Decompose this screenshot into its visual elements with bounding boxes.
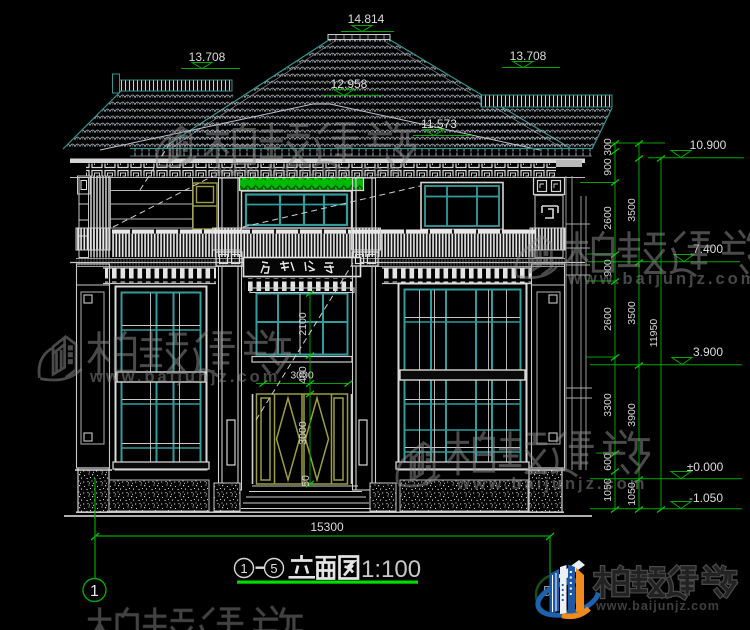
svg-text:1: 1 bbox=[240, 561, 247, 576]
svg-text:3.900: 3.900 bbox=[693, 345, 723, 359]
svg-text:www.baijunjz.com: www.baijunjz.com bbox=[567, 270, 750, 288]
svg-text:1:100: 1:100 bbox=[361, 556, 421, 583]
svg-text:3000: 3000 bbox=[297, 421, 309, 445]
svg-text:1: 1 bbox=[90, 583, 99, 600]
svg-text:www.baijunjz.com: www.baijunjz.com bbox=[212, 162, 403, 180]
svg-text:10.900: 10.900 bbox=[690, 138, 727, 152]
svg-text:www.baijunjz.com: www.baijunjz.com bbox=[89, 368, 280, 386]
svg-text:13.708: 13.708 bbox=[189, 50, 226, 64]
svg-text:12.958: 12.958 bbox=[331, 77, 368, 91]
svg-text:900: 900 bbox=[602, 158, 614, 176]
svg-text:600: 600 bbox=[602, 453, 614, 471]
svg-text:±0.000: ±0.000 bbox=[687, 460, 724, 474]
svg-text:15300: 15300 bbox=[310, 520, 344, 534]
svg-text:2600: 2600 bbox=[602, 206, 614, 230]
svg-text:3300: 3300 bbox=[602, 393, 614, 417]
svg-text:2100: 2100 bbox=[297, 312, 309, 336]
svg-text:3900: 3900 bbox=[626, 403, 638, 427]
svg-text:5: 5 bbox=[270, 561, 277, 576]
svg-text:www.baijunjz.com: www.baijunjz.com bbox=[456, 475, 647, 493]
svg-text:3000: 3000 bbox=[290, 370, 314, 382]
svg-text:11950: 11950 bbox=[648, 319, 660, 348]
svg-text:11.573: 11.573 bbox=[421, 117, 457, 131]
svg-text:50: 50 bbox=[300, 475, 312, 487]
svg-text:3500: 3500 bbox=[626, 198, 638, 222]
svg-text:14.814: 14.814 bbox=[348, 12, 385, 26]
svg-text:www.baijunjz.com: www.baijunjz.com bbox=[595, 599, 720, 613]
svg-text:2600: 2600 bbox=[602, 307, 614, 331]
svg-text:3500: 3500 bbox=[626, 301, 638, 325]
svg-text:13.708: 13.708 bbox=[510, 49, 547, 63]
svg-text:300: 300 bbox=[602, 138, 614, 156]
svg-text:-1.050: -1.050 bbox=[689, 491, 723, 505]
